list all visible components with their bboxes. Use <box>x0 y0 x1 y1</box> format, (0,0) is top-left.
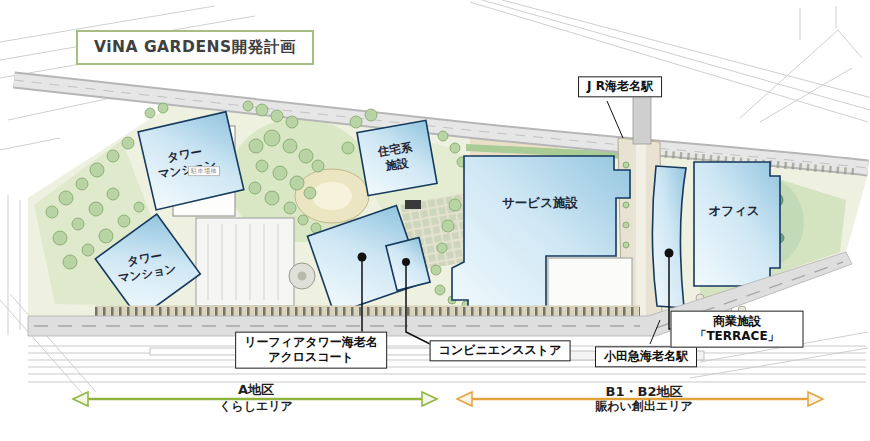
convenience-store-label: コンビニエンスストア <box>430 340 571 361</box>
jr-ebina-station-label: J R海老名駅 <box>578 76 662 97</box>
district-a-arrow <box>73 392 437 406</box>
parking-lot-block <box>196 218 294 306</box>
leafia-tower-label: リーフィアタワー海老名 アクロスコート <box>235 332 387 369</box>
site-plan-map <box>0 0 870 441</box>
district-b-arrow <box>457 392 823 406</box>
site-plan-page: ViNA GARDENS開発計画 タワー マンション 住宅系 施設 タワー マン… <box>0 0 870 441</box>
odakyu-ebina-station-label: 小田急海老名駅 <box>595 346 697 367</box>
plan-title: ViNA GARDENS開発計画 <box>76 30 314 65</box>
terrace-commercial-label: 商業施設「TERRACE」 <box>671 311 804 348</box>
